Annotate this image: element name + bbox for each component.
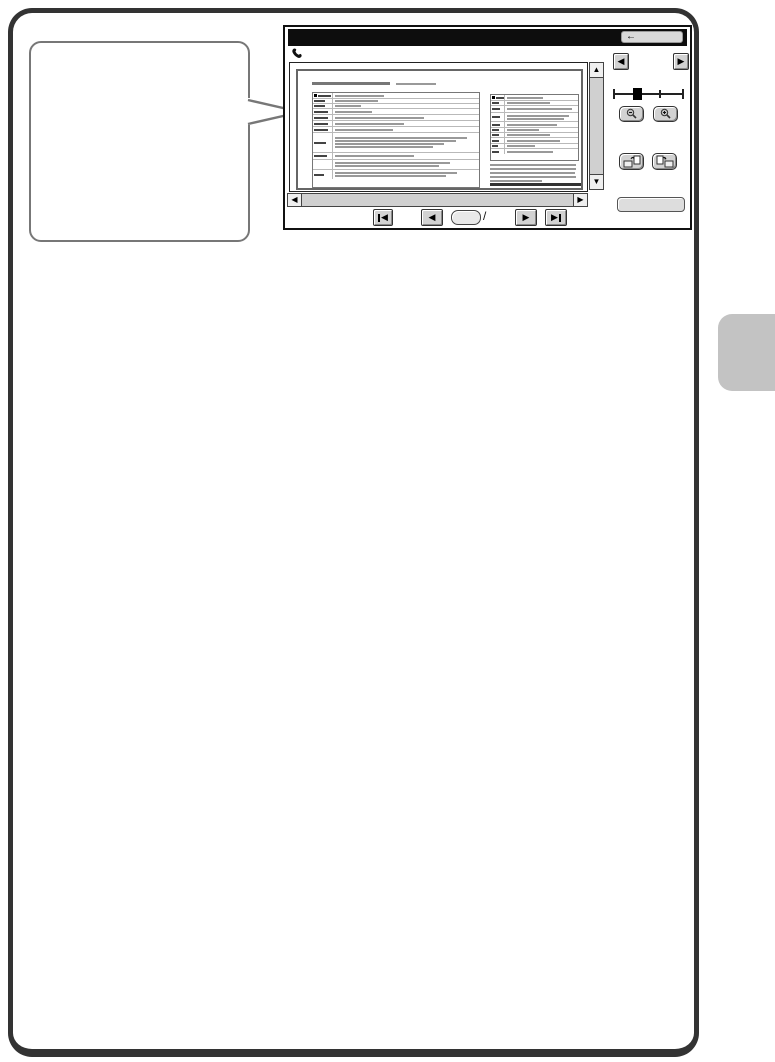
- spec-row: [313, 160, 479, 170]
- chapter-side-tab: [718, 314, 775, 391]
- document-preview: [296, 69, 583, 190]
- preview-footer-heading: [490, 183, 583, 186]
- first-page-icon: ◀: [378, 213, 388, 222]
- spec-row: [491, 106, 578, 113]
- spec-row: [491, 149, 578, 154]
- first-page-button[interactable]: ◀: [373, 209, 393, 226]
- rotate-left-button[interactable]: [619, 153, 644, 170]
- preview-viewport: [289, 62, 588, 192]
- vertical-scroll-track[interactable]: [589, 78, 604, 174]
- slider-tick-right: [682, 89, 684, 99]
- horizontal-scrollbar: ◀ ▶: [287, 193, 588, 207]
- scroll-up-button[interactable]: ▲: [589, 62, 604, 78]
- next-page-button[interactable]: ▶: [515, 209, 537, 226]
- rotate-page-left-icon: [623, 155, 641, 168]
- preview-page-right-button[interactable]: ▶: [673, 53, 689, 70]
- slider-tick-middle: [659, 90, 661, 98]
- page-separator: /: [483, 209, 486, 223]
- scroll-right-button[interactable]: ▶: [573, 193, 588, 207]
- device-screenshot: ← ▲ ▼ ◀ ▶ ◀ ◀ / ▶ ▶: [283, 25, 692, 230]
- next-page-icon: ▶: [523, 213, 530, 222]
- horizontal-scroll-track[interactable]: [302, 193, 573, 207]
- slider-tick-left: [613, 89, 615, 99]
- spec-row: [491, 113, 578, 122]
- zoom-out-button[interactable]: [619, 106, 644, 122]
- phone-receiver-icon: [291, 47, 303, 60]
- left-triangle-icon: ◀: [618, 57, 625, 66]
- zoom-slider-track[interactable]: [613, 93, 684, 95]
- zoom-slider[interactable]: [613, 87, 684, 101]
- preview-right-table: [490, 94, 579, 161]
- scroll-down-button[interactable]: ▼: [589, 174, 604, 190]
- zoom-in-button[interactable]: [653, 106, 678, 122]
- last-page-button[interactable]: ▶: [545, 209, 567, 226]
- spec-row: [313, 170, 479, 179]
- spec-row: [313, 133, 479, 153]
- right-triangle-icon: ▶: [678, 57, 685, 66]
- vertical-scrollbar: ▲ ▼: [589, 62, 604, 190]
- rotate-page-right-icon: [656, 155, 674, 168]
- magnifier-minus-icon: [626, 108, 638, 120]
- last-page-icon: ▶: [551, 213, 561, 222]
- preview-left-table: [312, 92, 480, 188]
- page-number-box[interactable]: [451, 210, 481, 225]
- callout-box: [29, 41, 250, 242]
- doc-subtitle-bar: [396, 83, 436, 85]
- preview-page-left-button[interactable]: ◀: [613, 53, 629, 70]
- back-arrow-icon: ←: [626, 32, 636, 42]
- magnifier-plus-icon: [660, 108, 672, 120]
- back-button[interactable]: ←: [621, 31, 683, 43]
- zoom-slider-thumb[interactable]: [633, 88, 642, 100]
- scroll-left-button[interactable]: ◀: [287, 193, 302, 207]
- prev-page-icon: ◀: [429, 213, 436, 222]
- prev-page-button[interactable]: ◀: [421, 209, 443, 226]
- rotate-right-button[interactable]: [652, 153, 677, 170]
- panel-action-button[interactable]: [617, 197, 685, 212]
- spec-row: [313, 153, 479, 160]
- preview-paragraph: [490, 164, 579, 182]
- doc-title-bar: [312, 82, 390, 85]
